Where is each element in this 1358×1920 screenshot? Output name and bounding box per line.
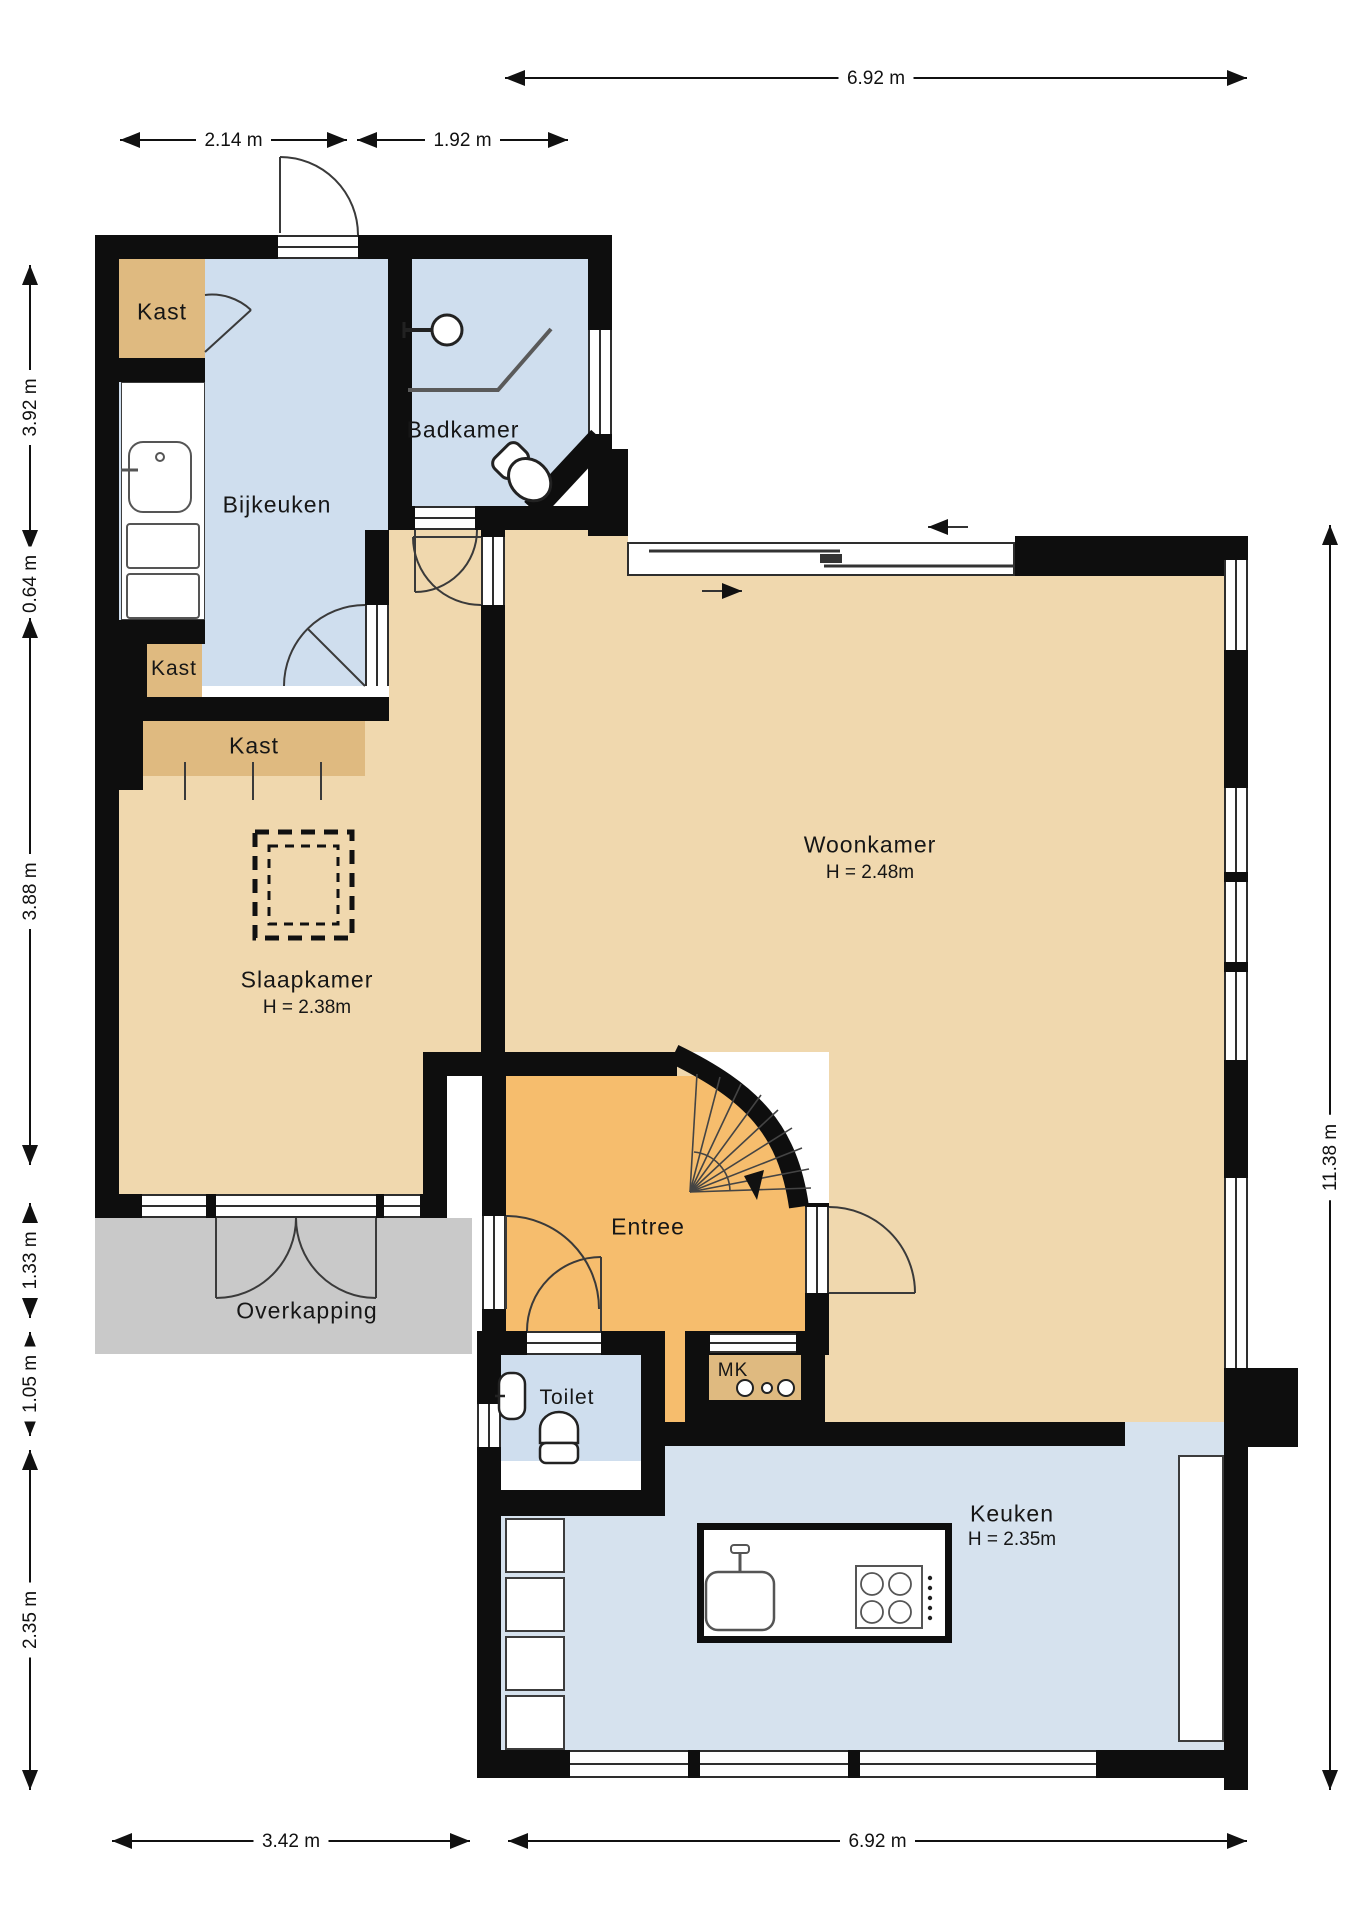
dim-top-width: 6.92 m [505, 66, 1247, 90]
room-label-kast2: Kast [151, 657, 197, 681]
dim-left-6: 2.35 m [18, 1450, 42, 1790]
room-label-badkamer: Badkamer [407, 417, 520, 444]
dim-badkamer-width: 1.92 m [357, 128, 568, 152]
dimension-label: 0.64 m [20, 555, 41, 613]
room-label-mk: MK [718, 1360, 749, 1382]
dimension-label: 1.05 m [20, 1355, 41, 1413]
room-height-keuken: H = 2.35m [968, 1529, 1056, 1551]
dimension-label: 1.92 m [433, 130, 491, 151]
kitchen-sink-icon [706, 1545, 774, 1630]
room-label-kast1: Kast [137, 299, 187, 326]
dim-right-height: 11.38 m [1318, 525, 1342, 1790]
dimension-label: 3.88 m [20, 862, 41, 920]
room-height-slaapkamer: H = 2.38m [263, 997, 351, 1019]
dim-left-3: 3.88 m [18, 618, 42, 1165]
annotation-layer: 6.92 m2.14 m1.92 m3.92 m0.64 m3.88 m1.33… [0, 0, 1358, 1920]
dim-bottom-right: 6.92 m [508, 1829, 1247, 1853]
dimension-label: 11.38 m [1320, 1124, 1341, 1191]
dim-left-1: 3.92 m [18, 265, 42, 550]
shower-icon [404, 315, 462, 345]
room-height-woonkamer: H = 2.48m [826, 862, 914, 884]
dimension-label: 1.33 m [20, 1231, 41, 1289]
hob-icon [856, 1566, 932, 1628]
dim-bottom-left: 3.42 m [112, 1829, 470, 1853]
room-label-kast3: Kast [229, 733, 279, 760]
wardrobe-slider-icon [185, 762, 321, 800]
dim-bijkeuken-width: 2.14 m [120, 128, 347, 152]
dimension-label: 3.92 m [20, 378, 41, 436]
dimension-label: 3.42 m [262, 1831, 320, 1852]
room-label-overkapping: Overkapping [236, 1298, 377, 1325]
dimension-label: 2.35 m [20, 1591, 41, 1649]
skylight-dashed-icon [255, 832, 352, 938]
dim-left-2: 0.64 m [18, 547, 42, 622]
dimension-label: 6.92 m [847, 68, 905, 89]
sliding-door-icon [649, 527, 1015, 591]
dimension-lines: 6.92 m2.14 m1.92 m3.92 m0.64 m3.88 m1.33… [18, 66, 1342, 1853]
meter-icon [737, 1380, 794, 1396]
toilet-icon [540, 1412, 578, 1463]
room-label-slaapkamer: Slaapkamer [241, 967, 374, 994]
toilet-basin-icon [495, 1373, 525, 1419]
room-label-entree: Entree [611, 1214, 685, 1241]
room-label-toilet: Toilet [539, 1386, 594, 1410]
dim-left-5: 1.05 m [18, 1332, 42, 1436]
floor-plan: Kast Bijkeuken Badkamer Kast Kast Slaapk… [0, 0, 1358, 1920]
room-label-woonkamer: Woonkamer [804, 832, 937, 859]
room-label-keuken: Keuken [970, 1501, 1054, 1528]
spiral-stairs-icon [674, 1052, 829, 1207]
room-label-bijkeuken: Bijkeuken [223, 492, 332, 519]
dim-left-4: 1.33 m [18, 1203, 42, 1318]
shower-screen [408, 329, 551, 390]
utility-sink-icon [121, 442, 191, 512]
appliance-icon [127, 524, 199, 618]
dimension-label: 2.14 m [204, 130, 262, 151]
dimension-label: 6.92 m [848, 1831, 906, 1852]
